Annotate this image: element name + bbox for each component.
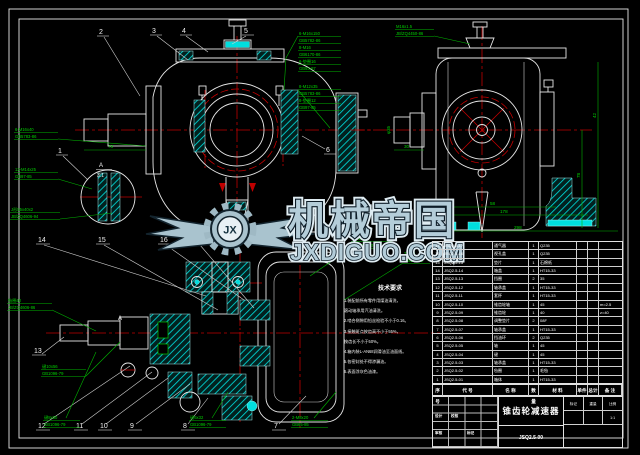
bom-header-qty: 数量 — [529, 385, 539, 396]
bom-cell-w1 — [577, 376, 588, 383]
tech-req-line: 1.装配前所有零件用煤油清洗， — [344, 296, 436, 306]
bom-cell-w2 — [588, 334, 599, 341]
bom-cell-w2 — [588, 317, 599, 324]
balloon-6: 6 — [326, 147, 330, 154]
bom-cell-w1 — [577, 301, 588, 308]
bom-cell-code: JSQ2.5-16 — [443, 250, 493, 257]
bom-cell-qty: 1 — [529, 284, 539, 291]
bom-cell-code: JSQ2.5-01 — [443, 376, 493, 383]
bom-cell-mat: HT15-33 — [539, 359, 577, 366]
bom-cell-w2 — [588, 259, 599, 266]
bom-cell-mat: Q235 — [539, 250, 577, 257]
bom-cell-w2 — [588, 342, 599, 349]
plan-section-letter: A — [118, 316, 122, 322]
callout-text: GB1096-79 — [42, 371, 64, 376]
bom-cell-code: JSQ2.5-12 — [443, 284, 493, 291]
bom-cell-note — [599, 275, 622, 282]
bom-cell-qty: 1 — [529, 326, 539, 333]
bom-cell-no: 10 — [433, 301, 443, 308]
bom-cell-no: 16 — [433, 250, 443, 257]
tech-req-lines: 1.装配前所有零件用煤油清洗，滚动轴承用汽油清洗。2.啮合侧隙用铅丝检验不小于0… — [344, 296, 436, 378]
callout-text: 毡圈40 — [8, 297, 22, 304]
bom-cell-qty: 1 — [529, 242, 539, 249]
tech-req-line: 3.接触斑点按齿高不小于55%， — [344, 327, 436, 337]
drawing-number: JSQ2.5-00 — [499, 426, 563, 449]
table-row: 12 JSQ2.5-12 轴承盖 1 HT15-33 — [433, 284, 622, 292]
bom-cell-mat: 35 — [539, 275, 577, 282]
bom-cell-qty: 2 — [529, 317, 539, 324]
bom-cell-qty: 1 — [529, 342, 539, 349]
bom-cell-w1 — [577, 351, 588, 358]
bom-cell-w2 — [588, 367, 599, 374]
approve-label: 审核 — [435, 431, 442, 436]
bom-cell-note — [599, 326, 622, 333]
table-row: 16 JSQ2.5-16 视孔盖 1 Q235 — [433, 250, 622, 258]
bom-cell-no: 3 — [433, 359, 443, 366]
bom-cell-name: 视孔盖 — [493, 250, 529, 257]
balloon-10: 10 — [100, 423, 108, 430]
callout-text: GB97-85 — [299, 105, 316, 110]
bom-cell-w2 — [588, 376, 599, 383]
plan-housing — [60, 252, 344, 422]
bom-cell-w1 — [577, 317, 588, 324]
bom-cell-mat: 45 — [539, 351, 577, 358]
bom-cell-name: 轴承盖 — [493, 326, 529, 333]
bom-cell-qty: 1 — [529, 292, 539, 299]
callout-text: JB/ZQ4450-86 — [396, 31, 424, 36]
logo-monogram: JX — [223, 225, 237, 237]
stage-mark-value — [564, 411, 584, 425]
bom-cell-note — [599, 359, 622, 366]
callout-text: M16x1.5 — [396, 24, 413, 29]
bom-cell-no: 17 — [433, 242, 443, 249]
watermark: JX 机械帝国 机械帝国 JXDIGUO.COM JXDIGUO.COM — [146, 199, 465, 265]
bom-cell-w1 — [577, 284, 588, 291]
callout-text: JB/ZQ4606-86 — [8, 305, 36, 310]
table-row: 3 JSQ2.5-03 轴承盖 1 HT15-33 — [433, 359, 622, 367]
bom-cell-mat: Q235 — [539, 242, 577, 249]
bom-cell-w2 — [588, 292, 599, 299]
callout-text: JB/ZQ4606-94 — [11, 214, 39, 219]
table-row: 8 JSQ2.5-08 调整垫片 2 08F — [433, 317, 622, 325]
balloon-15: 15 — [98, 237, 106, 244]
bom-cell-note: z=40 — [599, 309, 622, 316]
bom-cell-code: JSQ2.5-13 — [443, 275, 493, 282]
wing-left-icon — [146, 216, 214, 250]
bom-cell-qty: 1 — [529, 250, 539, 257]
bom-cell-qty: 1 — [529, 351, 539, 358]
bom-cell-w2 — [588, 275, 599, 282]
weight-value — [584, 411, 604, 425]
table-row: 9 JSQ2.5-09 锥齿轮 1 40 z=40 — [433, 309, 622, 317]
bom-cell-note — [599, 284, 622, 291]
bom-cell-w1 — [577, 359, 588, 366]
bom-cell-name: 键 — [493, 351, 529, 358]
tech-req-line: 滚动轴承用汽油清洗。 — [344, 306, 436, 316]
table-row: 4 JSQ2.5-04 键 1 45 — [433, 351, 622, 359]
bom-cell-mat: HT15-33 — [539, 326, 577, 333]
bom-rows: 17 JSQ2.5-17 通气器 1 Q235 16 JSQ2.5-16 视孔盖… — [433, 242, 622, 384]
bom-header-mat: 材 料 — [539, 385, 577, 396]
bom-cell-note — [599, 250, 622, 257]
bom-cell-mat: HT15-33 — [539, 267, 577, 274]
bom-cell-note — [599, 292, 622, 299]
drawing-title: 锥齿轮减速器 — [499, 397, 563, 426]
balloon-3: 3 — [152, 28, 156, 35]
callout-text: J形55x40x2 — [11, 206, 34, 213]
table-row: 6 JSQ2.5-06 挡油环 2 Q235 — [433, 334, 622, 342]
table-row: 11 JSQ2.5-11 套杯 1 HT15-33 — [433, 292, 622, 300]
bom-cell-no: 12 — [433, 284, 443, 291]
bom-header-w1: 单件 — [577, 385, 588, 396]
bom-cell-w1 — [577, 259, 588, 266]
bom-cell-mat: 45 — [539, 301, 577, 308]
bom-cell-w1 — [577, 242, 588, 249]
bom-cell-note: m=2.5 — [599, 301, 622, 308]
bom-header-note: 备 注 — [599, 385, 622, 396]
bom-cell-mat: 石棉纸 — [539, 259, 577, 266]
bom-header-name: 名 称 — [493, 385, 529, 396]
bom-cell-name: 轴 — [493, 342, 529, 349]
balloon-4: 4 — [182, 28, 186, 35]
balloon-1: 1 — [58, 148, 62, 155]
balloon-14: 14 — [38, 237, 46, 244]
balloon-9: 9 — [130, 423, 134, 430]
bom-cell-name: 套杯 — [493, 292, 529, 299]
bom-cell-no: 8 — [433, 317, 443, 324]
bom-cell-note — [599, 376, 622, 383]
detail-letter: A — [99, 163, 103, 169]
bom-cell-w1 — [577, 367, 588, 374]
tech-req-line: 4.箱内装L-AN68润滑油至油面线。 — [344, 347, 436, 357]
bom-cell-qty: 1 — [529, 301, 539, 308]
bom-cell-qty: 1 — [529, 359, 539, 366]
dim-58: 58 — [490, 201, 496, 206]
bom-cell-name: 箱盖 — [493, 267, 529, 274]
bom-cell-name: 挡圈 — [493, 275, 529, 282]
bom-cell-name: 挡油环 — [493, 334, 529, 341]
bom-cell-w1 — [577, 292, 588, 299]
bom-cell-note — [599, 367, 622, 374]
dim-42: 42 — [592, 112, 597, 118]
table-row: 17 JSQ2.5-17 通气器 1 Q235 — [433, 242, 622, 250]
callout-text: 8-M16 — [299, 45, 312, 50]
mark-label: 标记 — [467, 431, 474, 436]
bom-cell-w2 — [588, 359, 599, 366]
dim-78: 78 — [108, 144, 114, 149]
table-row: 7 JSQ2.5-07 轴承盖 1 HT15-33 — [433, 326, 622, 334]
bom-cell-code: JSQ2.5-05 — [443, 342, 493, 349]
bom-cell-code: JSQ2.5-03 — [443, 359, 493, 366]
table-row: 13 JSQ2.5-13 挡圈 2 35 — [433, 275, 622, 283]
table-row: 15 JSQ2.5-15 垫片 1 石棉纸 — [433, 259, 622, 267]
bom-cell-code: JSQ2.5-14 — [443, 267, 493, 274]
brand-text: 机械帝国 — [288, 199, 456, 243]
bom-cell-w1 — [577, 326, 588, 333]
bom-cell-name: 通气器 — [493, 242, 529, 249]
bom-cell-name: 调整垫片 — [493, 317, 529, 324]
bom-cell-w1 — [577, 309, 588, 316]
scale-value: 1:1 — [603, 411, 622, 425]
callout-text: 6-M16x150 — [299, 31, 321, 36]
tech-req-title: 技术要求 — [344, 283, 436, 292]
bom-header-w2: 总计 — [588, 385, 599, 396]
cad-drawing-canvas: 1 2 3 4 5 6 A 3:1 6-M16x40 — [0, 0, 640, 455]
callout-text: GB97-85 — [15, 174, 32, 179]
callout-text: 键8x50 — [44, 414, 58, 421]
bom-cell-note — [599, 259, 622, 266]
callout-text: 6-M16x40 — [15, 127, 34, 132]
bom-cell-mat: HT15-33 — [539, 292, 577, 299]
balloon-7: 7 — [274, 423, 278, 430]
bom-cell-qty: 1 — [529, 367, 539, 374]
bom-cell-qty: 1 — [529, 267, 539, 274]
bom-cell-name: 轴承盖 — [493, 284, 529, 291]
bom-cell-mat: HT15-33 — [539, 284, 577, 291]
bom-cell-name: 锥齿轮 — [493, 309, 529, 316]
bom-cell-note — [599, 317, 622, 324]
dim-178: 178 — [500, 209, 508, 214]
callout-text: GB5782-86 — [299, 38, 321, 43]
bom-cell-qty: 2 — [529, 275, 539, 282]
balloon-13: 13 — [34, 348, 42, 355]
callout-text: 键10x56 — [42, 363, 58, 370]
bom-cell-no: 1 — [433, 376, 443, 383]
bom-cell-qty: 1 — [529, 376, 539, 383]
bom-cell-code: JSQ2.5-11 — [443, 292, 493, 299]
bom-cell-name: 锥齿轮轴 — [493, 301, 529, 308]
dim-298: 298 — [514, 225, 522, 230]
bom-cell-w1 — [577, 267, 588, 274]
bom-cell-name: 毡圈 — [493, 367, 529, 374]
callout-text: 2-M8x20 — [292, 415, 309, 420]
callout-text: GB65-85 — [292, 422, 309, 427]
bom-cell-note — [599, 342, 622, 349]
balloon-2: 2 — [99, 29, 103, 36]
callout-text: 8-M12x35 — [299, 84, 318, 89]
callout-text: 键6x32 — [190, 414, 204, 421]
table-row: 14 JSQ2.5-14 箱盖 1 HT15-33 — [433, 267, 622, 275]
scale-label: 比例 — [603, 397, 622, 411]
title-block-middle: 锥齿轮减速器 JSQ2.5-00 — [499, 397, 564, 447]
bom-header-code: 代 号 — [443, 385, 493, 396]
bom-cell-w2 — [588, 309, 599, 316]
bom-cell-no: 9 — [433, 309, 443, 316]
tech-req-line: 按齿长不小于50%。 — [344, 337, 436, 347]
bom-cell-no: 2 — [433, 367, 443, 374]
bom-cell-w2 — [588, 267, 599, 274]
bom-cell-name: 箱体 — [493, 376, 529, 383]
bom-table: 17 JSQ2.5-17 通气器 1 Q235 16 JSQ2.5-16 视孔盖… — [432, 241, 623, 396]
table-row: 5 JSQ2.5-05 轴 1 45 — [433, 342, 622, 350]
bom-cell-code: JSQ2.5-07 — [443, 326, 493, 333]
tech-req-line: 5.各密封处不得渗漏油。 — [344, 357, 436, 367]
bom-cell-note — [599, 267, 622, 274]
bom-cell-w1 — [577, 342, 588, 349]
bom-cell-name: 垫片 — [493, 259, 529, 266]
bom-cell-code: JSQ2.5-17 — [443, 242, 493, 249]
tech-req-line: 6.表面涂灰色油漆。 — [344, 367, 436, 377]
bom-cell-note — [599, 242, 622, 249]
section-arrow-right — [249, 183, 256, 192]
bom-cell-note — [599, 334, 622, 341]
bom-cell-mat: Q235 — [539, 334, 577, 341]
bom-cell-mat: 40 — [539, 309, 577, 316]
bom-cell-note — [599, 351, 622, 358]
table-row: 10 JSQ2.5-10 锥齿轮轴 1 45 m=2.5 — [433, 301, 622, 309]
bom-cell-no: 15 — [433, 259, 443, 266]
bom-cell-qty: 1 — [529, 259, 539, 266]
bom-header-no: 序号 — [433, 385, 443, 396]
bom-cell-no: 4 — [433, 351, 443, 358]
callout-text: GB1096-79 — [44, 422, 66, 427]
bom-cell-w2 — [588, 326, 599, 333]
title-block-right: 标记 重量 比例 1:1 — [564, 397, 622, 447]
tech-req-line: 2.啮合侧隙用铅丝检验不小于0.16。 — [344, 316, 436, 326]
bom-cell-w2 — [588, 301, 599, 308]
balloon-5: 5 — [244, 28, 248, 35]
section-arrow-left — [219, 183, 226, 192]
bom-cell-code: JSQ2.5-10 — [443, 301, 493, 308]
title-block: 设计 校核 审核 标记 锥齿轮减速器 JSQ2.5-00 标记 重量 比例 1:… — [432, 396, 623, 448]
dim-30: 30 — [404, 144, 410, 149]
bom-cell-w2 — [588, 351, 599, 358]
bom-cell-w2 — [588, 250, 599, 257]
bom-cell-code: JSQ2.5-08 — [443, 317, 493, 324]
callout-text: GB1096-79 — [190, 422, 212, 427]
bom-cell-no: 11 — [433, 292, 443, 299]
callout-text: 12-M14x25 — [15, 167, 37, 172]
bom-cell-no: 14 — [433, 267, 443, 274]
stage-mark-label: 标记 — [564, 397, 584, 411]
bom-cell-code: JSQ2.5-06 — [443, 334, 493, 341]
bom-cell-code: JSQ2.5-15 — [443, 259, 493, 266]
bom-cell-code: JSQ2.5-02 — [443, 367, 493, 374]
bom-cell-w2 — [588, 242, 599, 249]
callout-text: GB5783-86 — [15, 134, 37, 139]
check-label: 校核 — [451, 414, 458, 419]
bom-cell-w1 — [577, 334, 588, 341]
title-block-revision-grid: 设计 校核 审核 标记 — [433, 397, 499, 447]
dim-phi35: φ35 — [386, 125, 391, 134]
bom-cell-no: 13 — [433, 275, 443, 282]
callout-text: GB6170-86 — [299, 52, 321, 57]
bom-cell-mat: HT15-33 — [539, 376, 577, 383]
table-row: 2 JSQ2.5-02 毡圈 1 毛毡 — [433, 367, 622, 375]
callout-text: GB93-87 — [299, 66, 316, 71]
bom-cell-no: 5 — [433, 342, 443, 349]
bom-cell-mat: 45 — [539, 342, 577, 349]
technical-requirements: 技术要求 1.装配前所有零件用煤油清洗，滚动轴承用汽油清洗。2.啮合侧隙用铅丝检… — [344, 283, 436, 378]
bom-header-row: 序号 代 号 名 称 数量 材 料 单件 总计 备 注 — [433, 384, 622, 396]
bom-cell-qty: 1 — [529, 309, 539, 316]
bom-cell-mat: 08F — [539, 317, 577, 324]
bom-cell-w2 — [588, 284, 599, 291]
table-row: 1 JSQ2.5-01 箱体 1 HT15-33 — [433, 376, 622, 384]
bom-cell-name: 轴承盖 — [493, 359, 529, 366]
bom-cell-code: JSQ2.5-04 — [443, 351, 493, 358]
callout-text: 6-垫圈16 — [299, 58, 316, 65]
balloon-8: 8 — [183, 423, 187, 430]
bom-cell-no: 7 — [433, 326, 443, 333]
weight-label: 重量 — [584, 397, 604, 411]
design-label: 设计 — [435, 414, 442, 419]
bom-cell-mat: 毛毡 — [539, 367, 577, 374]
callout-text: 8-垫圈12 — [299, 97, 316, 104]
bom-cell-w1 — [577, 275, 588, 282]
balloon-16: 16 — [160, 237, 168, 244]
bom-cell-code: JSQ2.5-09 — [443, 309, 493, 316]
bom-cell-qty: 2 — [529, 334, 539, 341]
bom-cell-w1 — [577, 250, 588, 257]
bom-cell-no: 6 — [433, 334, 443, 341]
dim-78v: 78 — [576, 172, 581, 178]
detail-scale: 3:1 — [97, 173, 104, 179]
